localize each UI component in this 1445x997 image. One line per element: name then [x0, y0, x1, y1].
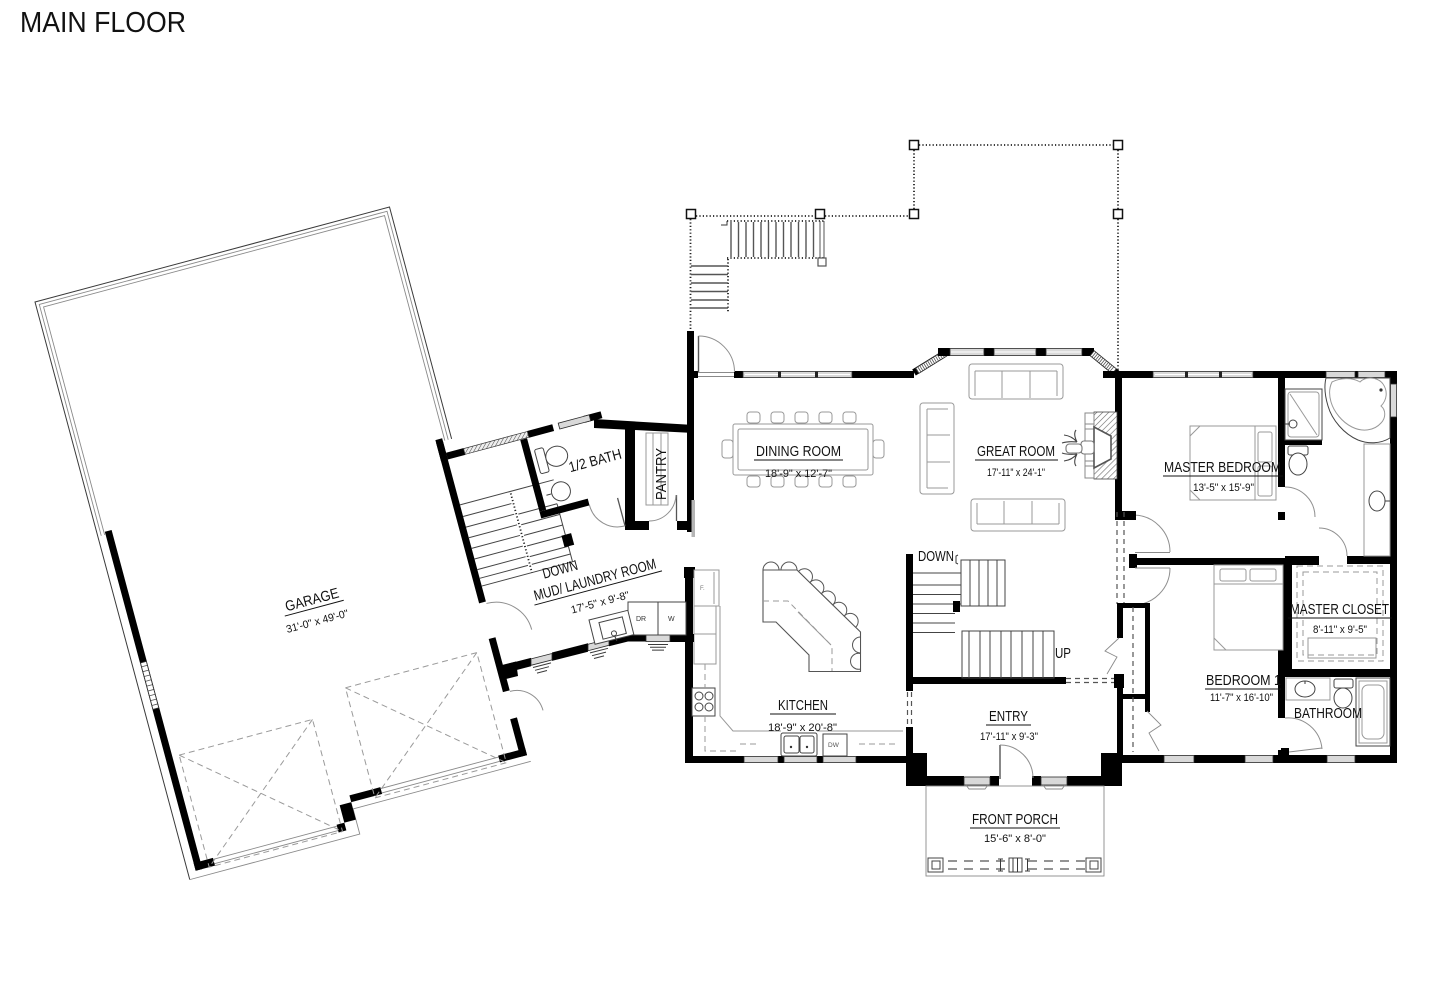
svg-text:8'-11" x 9'-5": 8'-11" x 9'-5": [1313, 624, 1367, 636]
svg-text:18'-9" x 12'-7": 18'-9" x 12'-7": [765, 468, 832, 480]
svg-text:11'-7" x 16'-10": 11'-7" x 16'-10": [1210, 692, 1273, 704]
svg-text:UP: UP: [1055, 646, 1071, 662]
svg-text:KITCHEN: KITCHEN: [778, 698, 828, 714]
svg-text:W: W: [668, 616, 675, 623]
svg-text:17'-11" x 9'-3": 17'-11" x 9'-3": [980, 731, 1038, 743]
svg-text:F.: F.: [700, 586, 705, 592]
svg-text:ENTRY: ENTRY: [989, 709, 1028, 725]
svg-text:13'-5" x 15'-9": 13'-5" x 15'-9": [1193, 482, 1254, 494]
svg-text:PANTRY: PANTRY: [654, 448, 670, 500]
svg-text:BATHROOM: BATHROOM: [1294, 706, 1362, 722]
svg-text:MASTER BEDROOM: MASTER BEDROOM: [1164, 460, 1281, 476]
svg-text:GREAT ROOM: GREAT ROOM: [977, 444, 1055, 460]
svg-text:MASTER CLOSET: MASTER CLOSET: [1290, 602, 1389, 618]
svg-text:MAIN FLOOR: MAIN FLOOR: [20, 7, 186, 39]
svg-text:18'-9" x 20'-8": 18'-9" x 20'-8": [768, 722, 837, 734]
svg-text:17'-11" x 24'-1": 17'-11" x 24'-1": [987, 467, 1045, 479]
svg-text:FRONT PORCH: FRONT PORCH: [972, 812, 1058, 828]
svg-text:DINING ROOM: DINING ROOM: [756, 444, 841, 460]
svg-text:DR: DR: [636, 616, 646, 623]
svg-text:BEDROOM 1: BEDROOM 1: [1206, 673, 1281, 689]
svg-text:DOWN: DOWN: [918, 549, 954, 565]
svg-text:15'-6" x 8'-0": 15'-6" x 8'-0": [984, 833, 1046, 845]
svg-text:DW: DW: [828, 742, 840, 749]
